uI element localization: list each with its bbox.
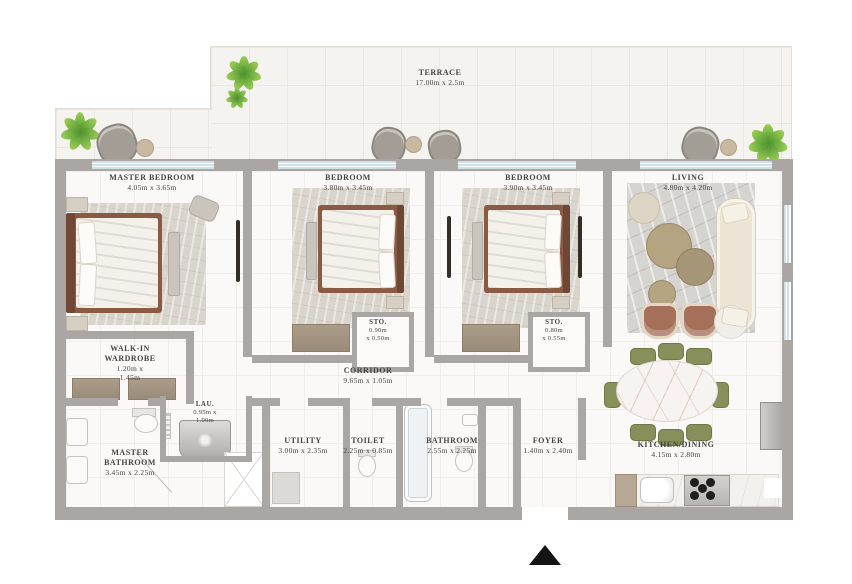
bed-pillow [78, 264, 97, 307]
tv-icon [447, 216, 451, 278]
wall-segment [243, 171, 252, 357]
nightstand [386, 192, 404, 205]
stove-burner-icon [698, 484, 707, 493]
window [278, 161, 396, 169]
window [92, 161, 214, 169]
tv-icon [578, 216, 582, 278]
dining-chair [658, 343, 684, 360]
sink [66, 418, 88, 446]
stove-burner-icon [706, 478, 715, 487]
window [784, 205, 791, 263]
coffee-table [676, 248, 714, 286]
toilet-icon [358, 455, 376, 477]
wall-segment [66, 398, 118, 406]
room-label-living: LIVING 4.80m x 4.20m [663, 173, 712, 192]
bed-bench [472, 222, 483, 280]
room-label-kitchen-dining: KITCHEN/DINING 4.15m x 2.80m [638, 440, 715, 459]
wall-segment [308, 398, 343, 406]
sink [462, 414, 478, 426]
room-label-toilet: TOILET 2.25m x 0.85m [343, 436, 392, 455]
room-label-corridor: CORRIDOR 9.65m x 1.05m [343, 366, 392, 385]
room-label-laundry: LAU. 0.95m x 1.00m [193, 400, 216, 425]
room-label-bathroom: BATHROOM 2.55m x 2.25m [426, 436, 478, 455]
bed-headboard [66, 213, 75, 313]
wall-segment [396, 398, 403, 507]
sink [66, 456, 88, 484]
side-table [720, 139, 737, 156]
wall-segment [425, 171, 434, 357]
dining-table [616, 360, 718, 422]
stove-burner-icon [690, 491, 699, 500]
kitchen-cabinet [615, 474, 637, 507]
wall-segment [513, 398, 521, 507]
side-table [405, 136, 422, 153]
wall-segment [403, 398, 421, 406]
wall-segment [160, 456, 252, 462]
nightstand [66, 316, 88, 331]
wall-segment [603, 171, 612, 347]
wall-segment [478, 398, 486, 507]
water-heater [272, 472, 300, 504]
plant-icon [228, 56, 260, 88]
tv-icon [236, 220, 240, 282]
floor-plan: TERRACE 17.00m x 2.5m [0, 0, 852, 584]
bed-bench [168, 232, 180, 296]
side-table [628, 192, 660, 224]
dresser [292, 324, 350, 352]
wall-segment [447, 398, 478, 406]
dresser [462, 324, 520, 352]
room-label-terrace: TERRACE 17.00m x 2.5m [415, 68, 464, 87]
kitchen-sink [640, 477, 674, 503]
plant-icon [227, 87, 247, 107]
wall-segment [372, 398, 396, 406]
bed-pillow [378, 252, 396, 289]
bed-pillow [544, 214, 562, 251]
nightstand [552, 296, 570, 309]
room-label-storage-1: STO. 0.90m x 0.50m [366, 318, 389, 343]
window [784, 282, 791, 340]
entrance-door-opening [522, 507, 568, 520]
nightstand [552, 192, 570, 205]
nightstand [66, 197, 88, 212]
wall-segment [186, 331, 194, 404]
bed-bench [306, 222, 317, 280]
wall-segment [160, 396, 166, 462]
toilet-icon [134, 414, 158, 433]
room-label-walk-in-wardrobe: WALK-IN WARDROBE 1.20m x 1.45m [104, 344, 155, 383]
room-label-bedroom-3: BEDROOM 3.90m x 3.45m [503, 173, 552, 192]
wall-segment [55, 159, 66, 520]
wall-segment [66, 331, 186, 339]
room-label-foyer: FOYER 1.40m x 2.40m [523, 436, 572, 455]
wall-segment [148, 398, 160, 406]
stove-burner-icon [706, 491, 715, 500]
wall-recess [764, 478, 782, 498]
room-label-storage-2: STO. 0.80m x 0.55m [542, 318, 565, 343]
wall-segment [262, 398, 270, 507]
bed-headboard [397, 205, 404, 293]
room-label-utility: UTILITY 3.00m x 2.35m [278, 436, 327, 455]
entrance-arrow-icon [529, 545, 561, 565]
window [640, 161, 772, 169]
window [458, 161, 576, 169]
wall-segment [55, 507, 793, 520]
bed-headboard [563, 205, 570, 293]
plant-icon [748, 124, 788, 160]
room-label-master-bedroom: MASTER BEDROOM 4.05m x 3.65m [109, 173, 194, 192]
wall-segment [578, 398, 586, 460]
dining-chair [630, 424, 656, 441]
plant-icon [62, 112, 98, 148]
bed-pillow [544, 252, 562, 289]
wall-segment [486, 398, 513, 406]
bed-pillow [378, 214, 396, 251]
room-label-master-bathroom: MASTER BATHROOM 3.45m x 2.25m [104, 448, 156, 477]
room-label-bedroom-2: BEDROOM 3.80m x 3.45m [323, 173, 372, 192]
wall-segment [252, 355, 352, 363]
wall-segment [434, 355, 528, 363]
armchair [641, 303, 679, 339]
nightstand [386, 296, 404, 309]
dining-chair [686, 424, 712, 441]
bed-pillow [78, 221, 98, 264]
side-table [136, 139, 154, 157]
